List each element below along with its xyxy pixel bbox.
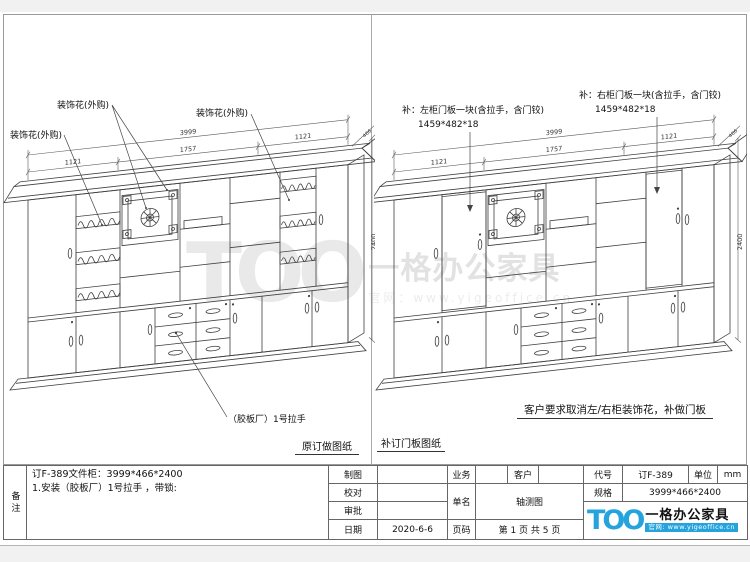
label-supplement-left-door: 补：左柜门板一块(含拉手，含门铰) — [402, 104, 544, 116]
remarks-cell: 订F-389文件柜：3999*466*2400 1.安装（胶板厂）1号拉手 ，带… — [27, 466, 329, 539]
company-logo-cell: TOO 一格办公家具 官网: www.yigeoffice.cn — [584, 502, 747, 539]
label-supplement-right-door: 补：右柜门板一块(含拉手，含门铰) — [579, 89, 721, 101]
original-drawing-panel: 3999 1121 1757 1121 466 2400 — [3, 14, 375, 465]
drafter-value — [378, 466, 448, 484]
dim-right-section: 1121 — [661, 132, 677, 142]
dim-right-section: 1121 — [295, 132, 311, 142]
page-label: 页码 — [448, 520, 476, 539]
label-handle-note: （胶板厂）1号拉手 — [228, 413, 306, 425]
customer-value — [539, 466, 584, 484]
caption-supplement-drawing: 补订门板图纸 — [377, 435, 445, 452]
approver-label: 审批 — [329, 502, 378, 520]
label-deco-flower-left: 装饰花(外购) — [10, 129, 62, 141]
customer-request-note: 客户要求取消左/右柜装饰花，补做门板 — [517, 402, 713, 419]
page-value: 第 1 页 共 5 页 — [476, 520, 584, 539]
label-supplement-right-door-size: 1459*482*18 — [595, 105, 656, 115]
checker-label: 校对 — [329, 484, 378, 502]
drafter-label: 制图 — [329, 466, 378, 484]
remarks-line-2: 1.安装（胶板厂）1号拉手 ，带锁: — [32, 482, 177, 496]
dim-height: 2400 — [736, 233, 744, 250]
remarks-line-1: 订F-389文件柜：3999*466*2400 — [32, 468, 183, 482]
dim-total-width: 3999 — [546, 127, 562, 137]
date-value: 2020-6-6 — [378, 520, 448, 539]
dim-total-width: 3999 — [180, 127, 196, 137]
remarks-header: 备注 — [4, 466, 27, 539]
spec-value: 3999*466*2400 — [623, 484, 747, 502]
logo-brand-text: 一格办公家具 — [645, 509, 738, 523]
order-name-label: 单名 — [448, 484, 476, 520]
business-label: 业务 — [448, 466, 476, 484]
date-label: 日期 — [329, 520, 378, 539]
dim-mid-section: 1757 — [180, 144, 196, 154]
company-logo: TOO 一格办公家具 官网: www.yigeoffice.cn — [587, 507, 738, 534]
dim-left-section: 1121 — [431, 157, 447, 167]
cabinet-drawing-supplement — [374, 133, 747, 391]
order-name-value: 轴测图 — [476, 484, 584, 520]
cabinet-drawing-original — [4, 133, 375, 391]
approver-value — [378, 502, 448, 520]
dim-depth: 466 — [728, 128, 739, 139]
annotation-leaders: 装饰花(外购) 装饰花(外购) 装饰花(外购) （胶板厂）1号拉手 — [10, 99, 306, 425]
dim-left-section: 1121 — [65, 157, 81, 167]
unit-value: mm — [718, 466, 747, 484]
logo-site-text: 官网: www.yigeoffice.cn — [645, 523, 738, 532]
too-logo-icon: TOO — [587, 507, 642, 534]
supplement-drawing-panel: 3999 1121 1757 1121 466 2400 — [374, 14, 747, 465]
dim-mid-section: 1757 — [546, 144, 562, 154]
spec-label: 规格 — [584, 484, 623, 502]
customer-label: 客户 — [508, 466, 539, 484]
label-supplement-left-door-size: 1459*482*18 — [418, 120, 479, 130]
drawing-sheet-page: TOO 一格办公家具 官网：www.yigeoffice.cn 3999 112… — [0, 0, 750, 562]
title-block-table: 备注 订F-389文件柜：3999*466*2400 1.安装（胶板厂）1号拉手… — [3, 465, 748, 540]
dim-depth: 466 — [362, 128, 373, 139]
checker-value — [378, 484, 448, 502]
caption-original-drawing: 原订做图纸 — [295, 438, 359, 455]
unit-label: 单位 — [689, 466, 718, 484]
code-label: 代号 — [584, 466, 623, 484]
code-value: 订F-389 — [623, 466, 689, 484]
label-deco-flower-right: 装饰花(外购) — [196, 107, 248, 119]
label-deco-flower-top: 装饰花(外购) — [57, 99, 109, 111]
business-value — [476, 466, 508, 484]
